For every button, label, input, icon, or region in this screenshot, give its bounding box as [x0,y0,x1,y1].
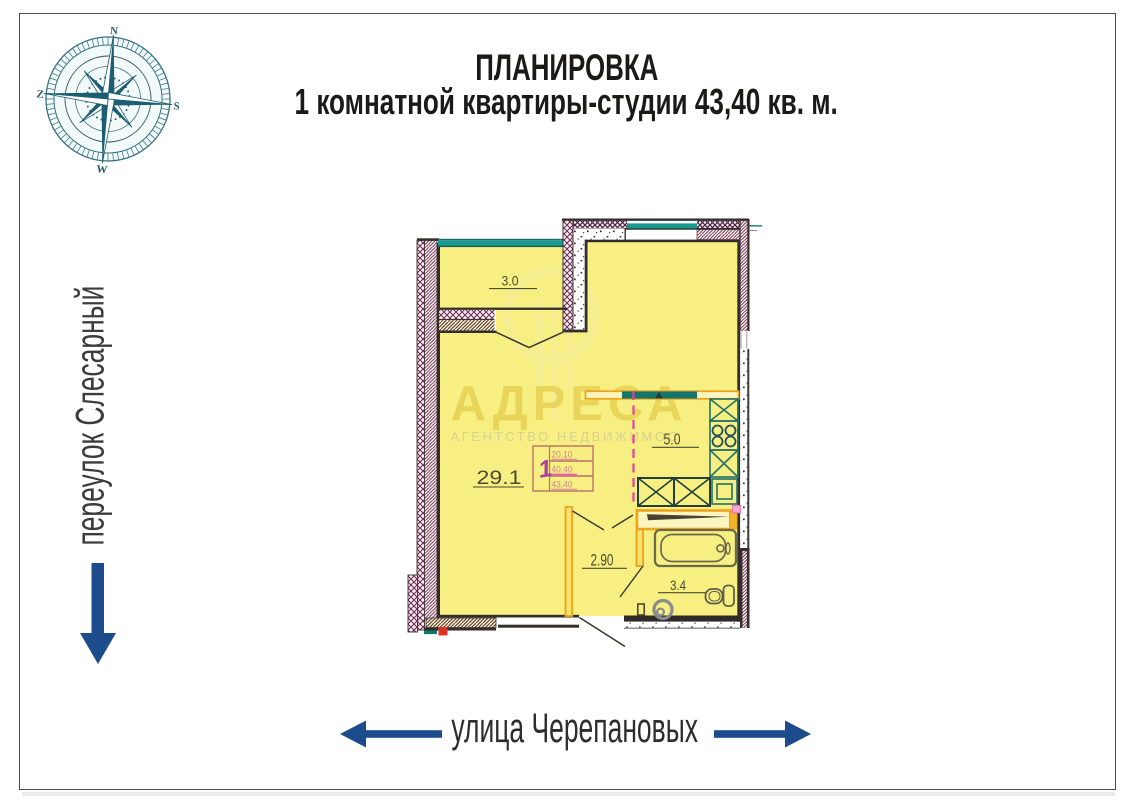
svg-text:S: S [173,100,180,112]
svg-text:3.4: 3.4 [670,577,686,593]
svg-text:2.90: 2.90 [591,551,614,570]
svg-text:5.0: 5.0 [664,432,681,449]
svg-text:АГЕНТСТВО НЕДВИЖИМОС: АГЕНТСТВО НЕДВИЖИМОС [450,429,679,444]
svg-text:Z: Z [36,88,44,101]
svg-text:АДРЕСА: АДРЕСА [450,377,687,431]
svg-text:W: W [96,163,108,176]
svg-text:3.0: 3.0 [502,273,519,289]
svg-text:N: N [109,25,118,38]
svg-text:29.1: 29.1 [477,468,522,489]
